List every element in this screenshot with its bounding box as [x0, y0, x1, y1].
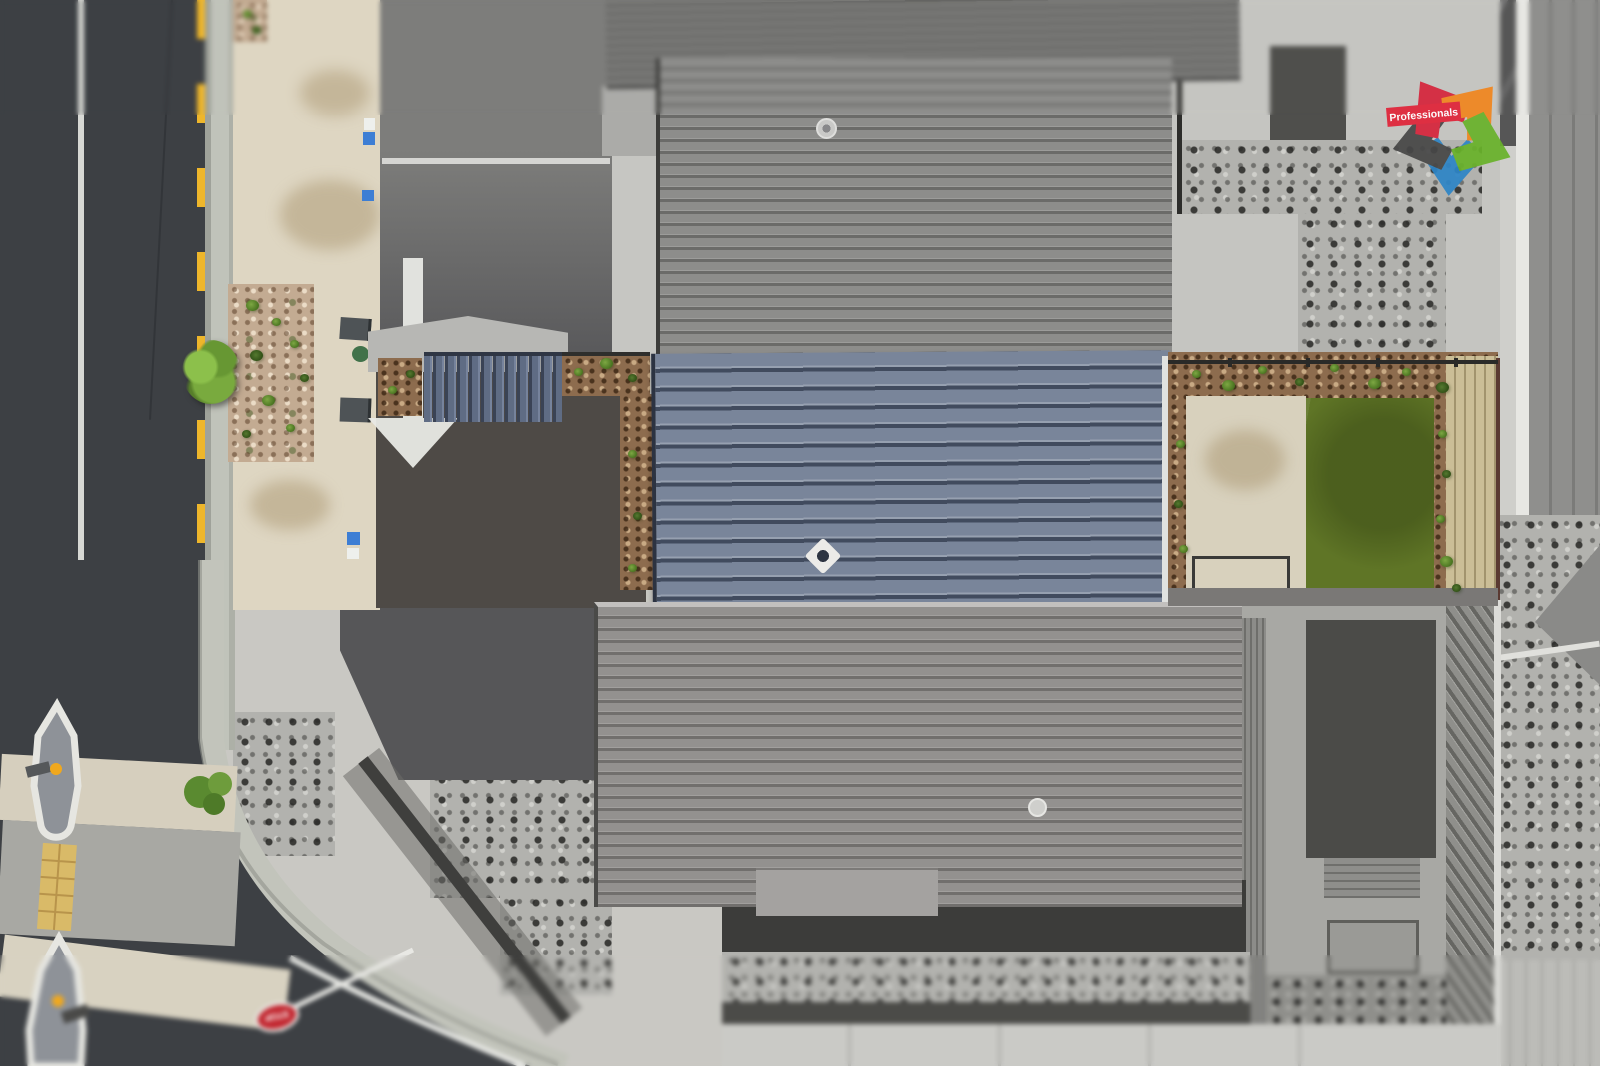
lane-white-line: [382, 158, 610, 164]
utility-lid-white-2: [347, 548, 359, 559]
utility-lid-white-1: [364, 118, 375, 130]
letterbox-2: [340, 397, 372, 422]
backyard-bottom-edge: [1168, 588, 1498, 606]
neighbor-below-storage-box: [1327, 920, 1419, 974]
backyard-fence-edge: [1496, 358, 1500, 600]
roof-vent-upper: [816, 118, 837, 139]
rail-post: [1454, 358, 1458, 367]
rail-post: [1228, 358, 1232, 367]
aerial-photo: STOP Professionals: [0, 0, 1600, 1066]
subject-roof: [651, 350, 1171, 606]
neighbor-below-lawn: [1306, 620, 1436, 858]
neighbor-below-awning: [1324, 858, 1420, 898]
utility-lid-blue-3: [347, 532, 360, 545]
neighbor-below-paling-fence: [1446, 600, 1496, 1066]
backyard-lawn: [1306, 398, 1434, 588]
front-fence: [424, 352, 562, 422]
garden-bed-street: [228, 284, 314, 462]
utility-lid-blue-1: [363, 132, 375, 145]
side-shrub-bed: [1270, 46, 1346, 148]
neighbor-roof-upper: [656, 58, 1172, 358]
rail-post: [1376, 358, 1380, 367]
rail-post: [1306, 358, 1310, 367]
lane-concrete-patch: [602, 86, 658, 156]
front-garden-left: [378, 358, 422, 416]
letterbox-1: [339, 317, 371, 341]
neighbor-right-deck: [1495, 960, 1600, 1066]
street-corner: STOP: [0, 560, 720, 1066]
roof-vent-bottom: [1028, 798, 1047, 817]
garden-bed-top: [233, 0, 267, 42]
backyard-timber-fence: [1446, 356, 1498, 602]
watermark-logo: Professionals: [1372, 56, 1542, 226]
neighbor-below-fence-rail: [1494, 600, 1501, 1066]
street-tree: [182, 340, 240, 404]
crossing-pavers: [37, 843, 77, 931]
utility-lid-blue-2: [362, 190, 374, 201]
side-gravel-patch: [1298, 214, 1446, 360]
utility-cap-green: [352, 346, 369, 362]
neighbor-roof-bottom-porch: [756, 868, 938, 916]
logo-banner: Professionals: [1386, 102, 1461, 127]
